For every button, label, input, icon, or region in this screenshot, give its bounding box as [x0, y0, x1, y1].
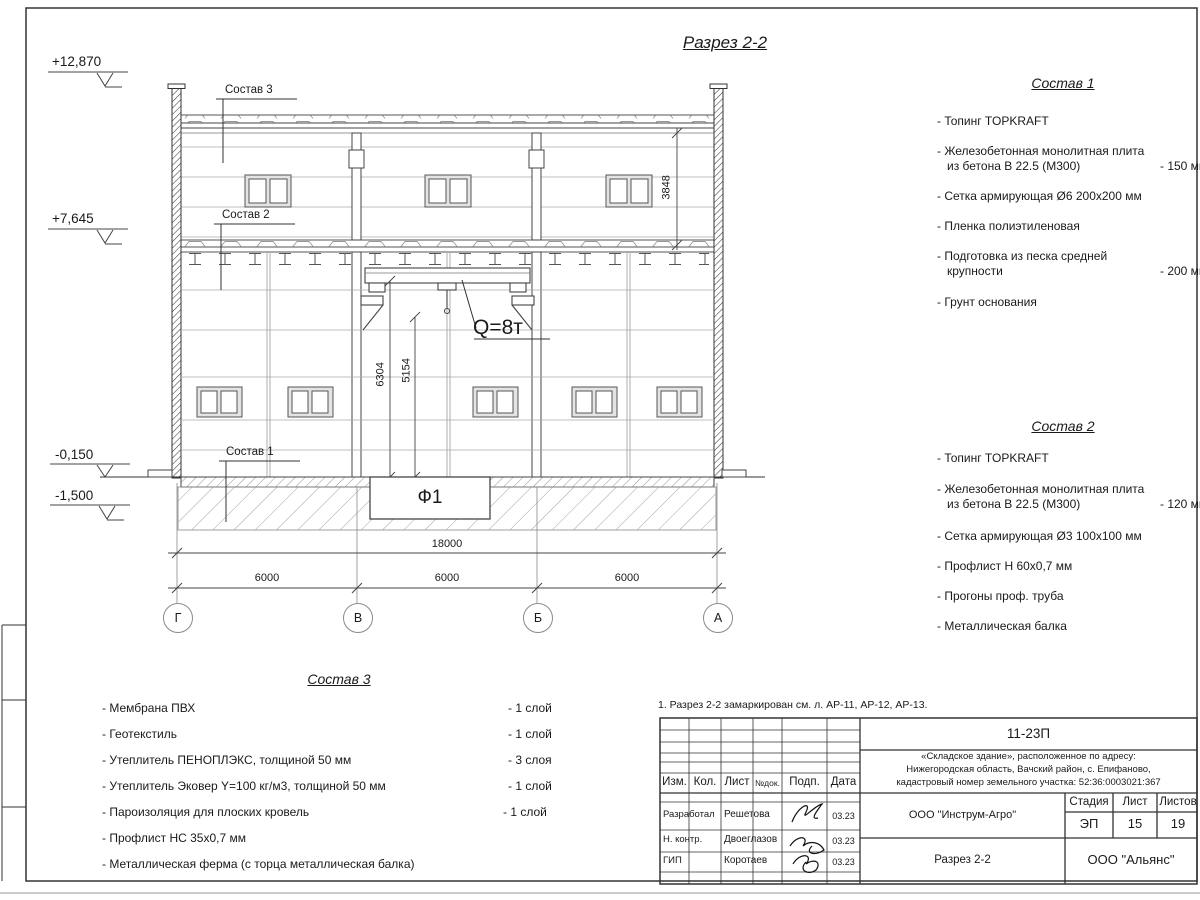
list-item-value: - 1 слой: [503, 806, 547, 820]
project-line2: Нижегородская область, Вачский район, с.…: [860, 765, 1197, 776]
list-item: - Топинг TOPKRAFT: [937, 115, 1049, 129]
sheet-label: Лист: [1113, 796, 1157, 809]
sheets-value: 19: [1157, 817, 1199, 832]
list-item-value: - 200 мм: [1160, 265, 1200, 279]
axis-bubble-v: В: [343, 603, 373, 633]
list-item-value: - 120 мм: [1160, 498, 1200, 512]
titleblock-role: Н. контр.: [663, 835, 702, 846]
elevation-ground: -0,150: [55, 447, 93, 463]
drawing-sheet: { "sheet": { "title": "Разрез 2-2", "not…: [0, 0, 1200, 900]
list-item: из бетона В 22.5 (М300): [947, 160, 1080, 174]
list-item: - Грунт основания: [937, 296, 1037, 310]
titleblock-col-podp: Подп.: [782, 776, 827, 789]
list-item-value: - 1 слой: [508, 728, 552, 742]
list-item-value: - 150 мм: [1160, 160, 1200, 174]
list-item: - Железобетонная монолитная плита: [937, 145, 1144, 159]
titleblock-role: ГИП: [663, 856, 682, 867]
axis-letter: А: [714, 611, 722, 625]
elevation-base: -1,500: [55, 488, 93, 504]
stage-label: Стадия: [1065, 796, 1113, 809]
sheet-value: 15: [1113, 817, 1157, 832]
axis-bubble-a: А: [703, 603, 733, 633]
list-item: - Геотекстиль: [102, 728, 177, 742]
page-title: Разрез 2-2: [625, 33, 825, 53]
dim-bay-3: 6000: [577, 572, 677, 585]
elevation-floor2: +7,645: [52, 211, 94, 227]
sheets-label: Листов: [1157, 796, 1199, 809]
signature-strokes: [790, 804, 824, 872]
axis-bubble-b: Б: [523, 603, 553, 633]
list-item: - Мембрана ПВХ: [102, 702, 195, 716]
dim-3848: 3848: [661, 167, 674, 207]
slab-composition-ref: Состав 1: [226, 446, 274, 459]
list-item: - Сетка армирующая Ø6 200х200 мм: [937, 190, 1142, 204]
sheet-note: 1. Разрез 2-2 замаркирован см. л. АР-11,…: [658, 699, 927, 711]
list-item-value: - 1 слой: [508, 702, 552, 716]
stage-value: ЭП: [1065, 817, 1113, 832]
titleblock-col-kol: Кол.: [689, 776, 721, 789]
axis-letter: Г: [175, 611, 182, 625]
sostav2-heading: Состав 2: [963, 418, 1163, 434]
list-item: - Прогоны проф. труба: [937, 590, 1064, 604]
list-item: - Металлическая балка: [937, 620, 1067, 634]
org-name: ООО "Инструм-Агро": [862, 809, 1063, 822]
titleblock-col-ndok: №док.: [753, 779, 782, 789]
list-item: - Профлист Н 60х0,7 мм: [937, 560, 1072, 574]
list-item: - Сетка армирующая Ø3 100х100 мм: [937, 530, 1142, 544]
titleblock-col-izm: Изм.: [660, 776, 689, 789]
list-item-value: - 3 слоя: [508, 754, 552, 768]
roof-composition-ref: Состав 3: [225, 84, 273, 97]
drawing-name: Разрез 2-2: [862, 854, 1063, 867]
list-item: - Пленка полиэтиленовая: [937, 220, 1080, 234]
foundation-label: Ф1: [400, 487, 460, 509]
sostav1-heading: Состав 1: [963, 75, 1163, 91]
titleblock-date: 03.23: [827, 857, 860, 867]
list-item: - Утеплитель Эковер Y=100 кг/м3, толщино…: [102, 780, 386, 794]
titleblock-name: Решетова: [724, 809, 770, 821]
elevation-top: +12,870: [52, 54, 101, 70]
titleblock-date: 03.23: [827, 836, 860, 846]
list-item-value: - 1 слой: [508, 780, 552, 794]
titleblock-col-list: Лист: [721, 776, 753, 789]
titleblock-role: Разработал: [663, 810, 715, 821]
crane-capacity-label: Q=8т: [473, 316, 523, 340]
project-line3: кадастровый номер земельного участка: 52…: [860, 778, 1197, 789]
list-item: - Железобетонная монолитная плита: [937, 483, 1144, 497]
dim-total-18000: 18000: [397, 538, 497, 551]
list-item: - Металлическая ферма (с торца металличе…: [102, 858, 415, 872]
axis-letter: Б: [534, 611, 542, 625]
list-item: - Пароизоляция для плоских кровель: [102, 806, 309, 820]
list-item: крупности: [947, 265, 1003, 279]
list-item: из бетона В 22.5 (М300): [947, 498, 1080, 512]
list-item: - Профлист НС 35х0,7 мм: [102, 832, 246, 846]
dim-6304: 6304: [375, 354, 388, 394]
titleblock-col-data: Дата: [827, 776, 860, 789]
titleblock-date: 03.23: [827, 811, 860, 821]
doc-number: 11-23П: [860, 726, 1197, 742]
titleblock-name: Двоеглазов: [724, 834, 777, 846]
dim-5154: 5154: [401, 350, 414, 390]
axis-letter: В: [354, 611, 362, 625]
titleblock-name: Коротаев: [724, 855, 767, 867]
list-item: - Подготовка из песка средней: [937, 250, 1107, 264]
floor-composition-ref: Состав 2: [222, 209, 270, 222]
dim-bay-2: 6000: [397, 572, 497, 585]
axis-bubble-g: Г: [163, 603, 193, 633]
dim-bay-1: 6000: [217, 572, 317, 585]
project-line1: «Складское здание», расположенное по адр…: [860, 752, 1197, 763]
sostav3-heading: Состав 3: [239, 671, 439, 687]
company-name: ООО "Альянс": [1065, 853, 1197, 868]
list-item: - Топинг TOPKRAFT: [937, 452, 1049, 466]
list-item: - Утеплитель ПЕНОПЛЭКС, толщиной 50 мм: [102, 754, 351, 768]
